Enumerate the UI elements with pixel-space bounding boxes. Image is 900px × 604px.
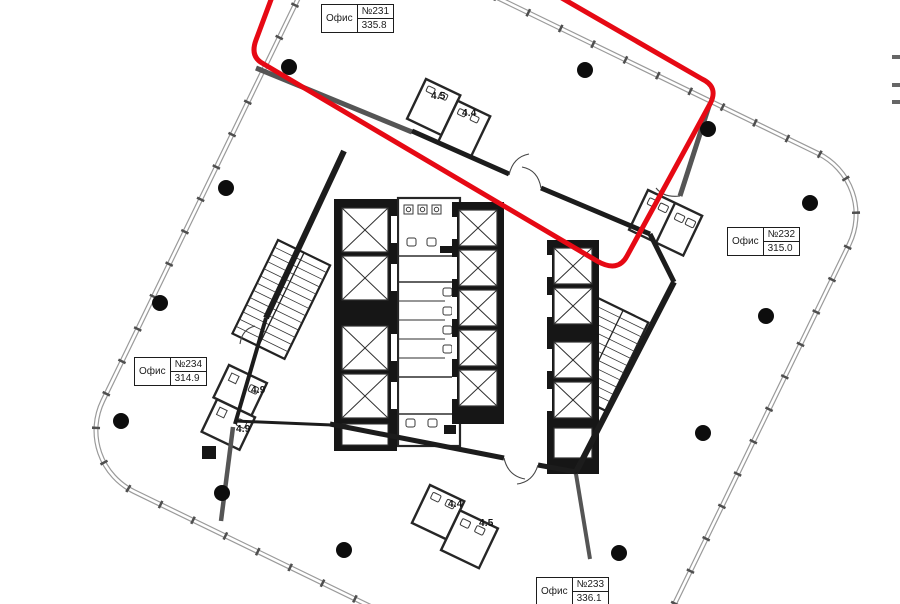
sink-icons [404, 205, 441, 214]
office-label-231[interactable]: Офис №231 335.8 [321, 4, 394, 33]
stairs-left [232, 240, 330, 359]
office-number: №232 [764, 228, 799, 242]
office-label-234[interactable]: Офис №234 314.9 [134, 357, 207, 386]
restroom-block [398, 198, 460, 446]
floor-plan-drawing [0, 0, 900, 604]
office-name: Офис [728, 228, 764, 255]
office-label-233[interactable]: Офис №233 336.1 [536, 577, 609, 604]
office-area: 335.8 [358, 19, 393, 32]
wc-rooms-left [198, 365, 271, 450]
office-name: Офис [135, 358, 171, 385]
floor-plan: Офис №231 335.8 Офис №232 315.0 Офис №23… [0, 0, 900, 604]
office-number: №233 [573, 578, 608, 592]
dim-label-top-2: 4.4 [462, 108, 477, 119]
elevator-bank-left [334, 199, 397, 451]
wc-rooms-right [629, 190, 702, 256]
dim-label-bottom-2: 4.5 [479, 518, 494, 529]
dim-label-bottom-1: 4.4 [448, 499, 463, 510]
door-leaf [440, 246, 452, 253]
edge-marks [892, 55, 900, 104]
office-number: №234 [171, 358, 206, 372]
dim-label-left-1: 4.9 [251, 385, 266, 396]
office-area: 336.1 [573, 592, 608, 604]
dim-label-top-1: 4.5 [431, 91, 446, 102]
office-name: Офис [537, 578, 573, 604]
dim-label-left-2: 4.9 [236, 424, 251, 435]
elevator-bank-middle [452, 202, 504, 424]
door-leaf [444, 425, 456, 434]
office-area: 315.0 [764, 242, 799, 255]
office-area: 314.9 [171, 372, 206, 385]
office-number: №231 [358, 5, 393, 19]
office-label-232[interactable]: Офис №232 315.0 [727, 227, 800, 256]
office-name: Офис [322, 5, 358, 32]
